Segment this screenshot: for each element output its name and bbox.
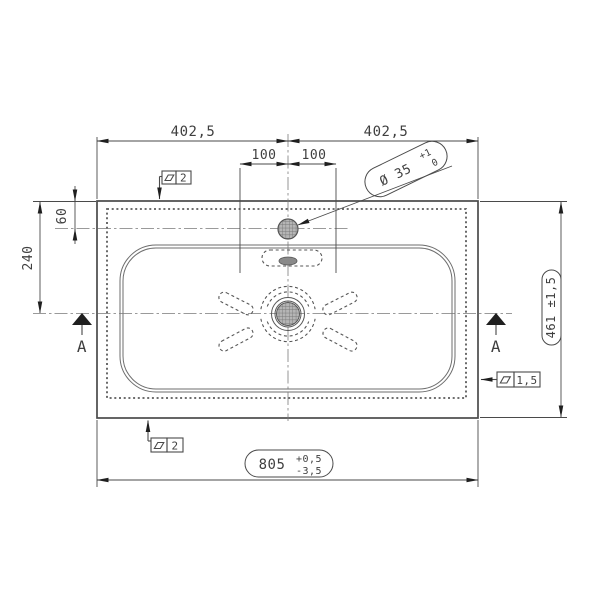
dim-label-100-right: 100: [302, 148, 327, 163]
dim-label-402-right: 402,5: [364, 124, 409, 140]
dim-label-805-tol-minus: -3,5: [296, 466, 322, 477]
washbasin-technical-drawing: 402,5 402,5 100 100 60 240 461 ±1,5 805 …: [0, 0, 600, 598]
overflow-opening: [279, 257, 297, 265]
section-arrow-right: [486, 313, 506, 325]
dim-label-805-tol-plus: +0,5: [296, 454, 322, 465]
drain-rib-arm-upper-right: [321, 290, 359, 316]
drain-rib-arm-lower-right: [321, 326, 359, 353]
dim-label-402-left: 402,5: [171, 124, 216, 140]
gdt-right-symbol-cell: [497, 372, 514, 387]
drain-rib-arm-lower-left: [217, 326, 255, 353]
centerline-layer: [33, 134, 512, 421]
dim-label-805: 805: [259, 457, 286, 473]
drain-hole: [277, 303, 300, 326]
dimension-layer: [33, 136, 567, 487]
faucet-hole: [278, 219, 298, 239]
drawing-canvas: 402,5 402,5 100 100 60 240 461 ±1,5 805 …: [0, 0, 600, 598]
gdt-bottom-value: 2: [171, 440, 178, 453]
dim-label-60: 60: [55, 208, 70, 225]
gdt-right-value: 1,5: [516, 374, 537, 387]
gdt-top-value: 2: [180, 172, 187, 185]
dim-label-faucet-dia: Ø 35: [378, 162, 415, 190]
flatness-icon: [165, 175, 174, 181]
section-arrow-left: [72, 313, 92, 325]
drain-rib-arm-upper-left: [217, 290, 255, 316]
gdt-bottom-symbol-cell: [151, 438, 167, 452]
dim-label-faucet-tol-minus: 0: [430, 157, 440, 170]
flatness-icon: [154, 443, 164, 449]
section-label-right: A: [491, 337, 501, 356]
flatness-icon: [500, 377, 510, 383]
dim-label-461: 461 ±1,5: [544, 277, 558, 339]
gdt-top-symbol-cell: [162, 171, 176, 184]
dim-label-240: 240: [21, 246, 36, 271]
dim-label-100-left: 100: [252, 148, 277, 163]
section-label-left: A: [77, 337, 87, 356]
faucet-dia-label-group: Ø 35 +1 0: [376, 146, 441, 193]
